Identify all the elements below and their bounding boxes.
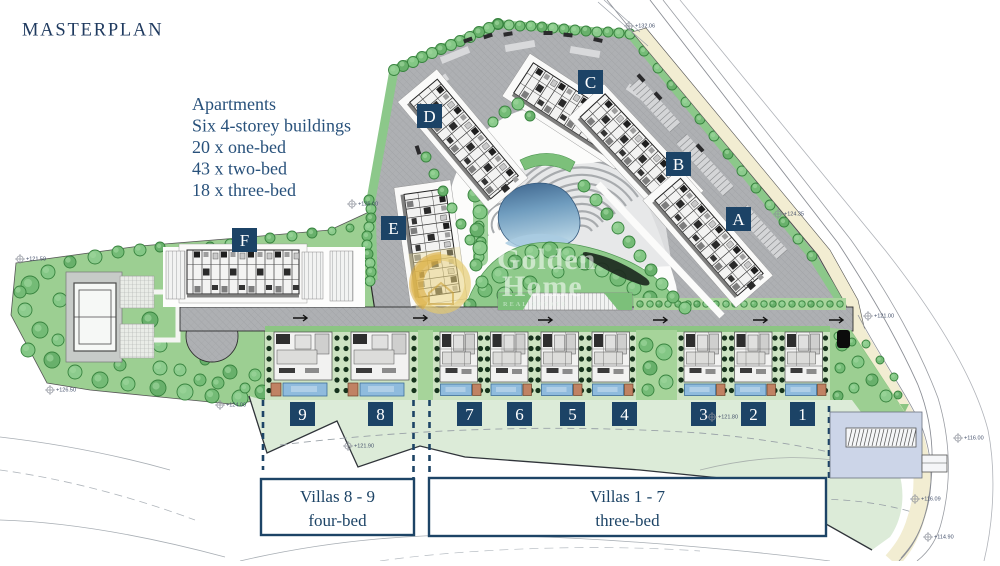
svg-text:7: 7	[465, 405, 474, 424]
svg-text:C: C	[585, 73, 596, 92]
svg-text:REAL ESTATE: REAL ESTATE	[503, 301, 568, 308]
svg-text:18 x three-bed: 18 x three-bed	[192, 180, 296, 200]
svg-text:3: 3	[699, 405, 708, 424]
svg-text:Apartments: Apartments	[192, 94, 276, 114]
svg-text:2: 2	[749, 405, 758, 424]
svg-text:Home: Home	[502, 270, 583, 303]
svg-text:+121.00: +121.00	[874, 314, 894, 320]
svg-text:D: D	[423, 107, 435, 126]
svg-text:A: A	[732, 210, 745, 229]
svg-text:+126.50: +126.50	[56, 388, 76, 394]
svg-text:four-bed: four-bed	[308, 511, 367, 530]
svg-text:5: 5	[568, 405, 577, 424]
svg-text:8: 8	[376, 405, 385, 424]
svg-text:+126.00: +126.00	[358, 202, 378, 208]
svg-text:20 x one-bed: 20 x one-bed	[192, 137, 286, 157]
svg-text:+132.06: +132.06	[635, 24, 655, 30]
svg-text:MASTERPLAN: MASTERPLAN	[22, 21, 163, 41]
svg-text:+116.00: +116.00	[964, 436, 984, 442]
svg-text:Villas 8 - 9: Villas 8 - 9	[300, 487, 375, 506]
svg-text:9: 9	[298, 405, 307, 424]
svg-text:+124.00: +124.00	[226, 403, 246, 409]
svg-text:6: 6	[515, 405, 524, 424]
svg-text:+116.09: +116.09	[921, 497, 941, 503]
svg-text:43 x two-bed: 43 x two-bed	[192, 159, 287, 179]
svg-text:Six 4-storey buildings: Six 4-storey buildings	[192, 116, 351, 136]
svg-text:+124.35: +124.35	[784, 212, 804, 218]
svg-text:E: E	[388, 219, 398, 238]
svg-text:4: 4	[620, 405, 629, 424]
svg-text:+114.90: +114.90	[934, 535, 954, 541]
svg-text:+121.90: +121.90	[354, 444, 374, 450]
svg-text:1: 1	[798, 405, 807, 424]
svg-text:Villas 1 - 7: Villas 1 - 7	[590, 487, 665, 506]
svg-text:+121.59: +121.59	[26, 257, 46, 263]
svg-text:+121.80: +121.80	[718, 415, 738, 421]
svg-text:F: F	[240, 231, 249, 250]
svg-text:B: B	[673, 155, 684, 174]
svg-text:three-bed: three-bed	[595, 511, 660, 530]
